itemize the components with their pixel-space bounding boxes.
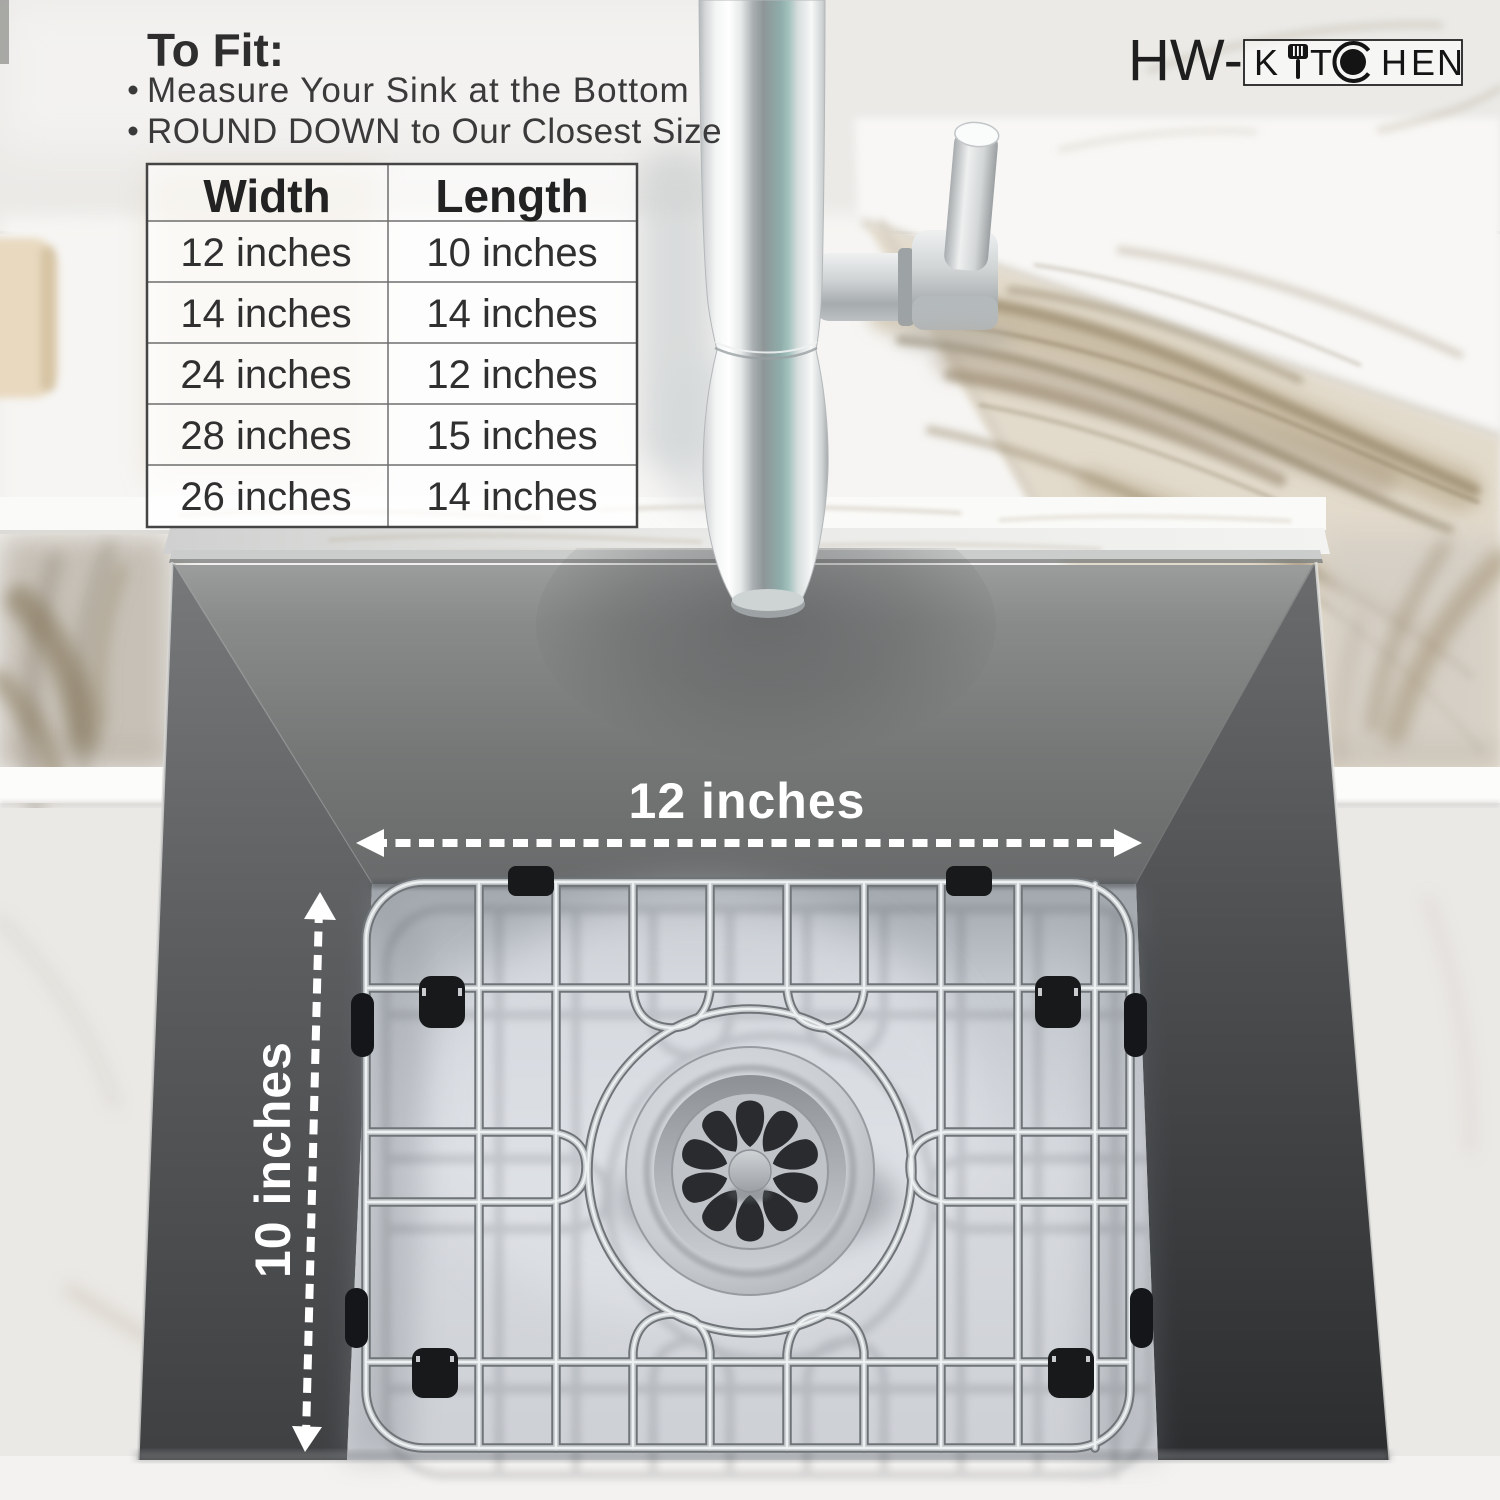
svg-text:12 inches: 12 inches [629, 773, 866, 829]
svg-text:Measure Your Sink at the Botto: Measure Your Sink at the Bottom [147, 71, 690, 110]
svg-text:14 inches: 14 inches [426, 475, 597, 519]
svg-text:H: H [1381, 42, 1407, 83]
svg-text:12 inches: 12 inches [426, 353, 597, 397]
svg-text:15 inches: 15 inches [426, 414, 597, 458]
svg-text:K: K [1254, 42, 1278, 83]
svg-text:T: T [1310, 42, 1332, 83]
svg-text:26 inches: 26 inches [180, 475, 351, 519]
svg-text:Width: Width [203, 170, 330, 222]
svg-text:10 inches: 10 inches [426, 231, 597, 275]
svg-text:28 inches: 28 inches [180, 414, 351, 458]
svg-text:HW-: HW- [1128, 28, 1243, 93]
svg-text:Length: Length [435, 170, 588, 222]
svg-text:To Fit:: To Fit: [147, 24, 284, 76]
svg-text:10 inches: 10 inches [245, 1041, 301, 1278]
svg-text:14 inches: 14 inches [426, 292, 597, 336]
svg-text:24 inches: 24 inches [180, 353, 351, 397]
svg-text:ROUND DOWN to Our Closest Size: ROUND DOWN to Our Closest Size [147, 112, 722, 151]
svg-text:12 inches: 12 inches [180, 231, 351, 275]
svg-text:E: E [1411, 42, 1435, 83]
svg-text:14 inches: 14 inches [180, 292, 351, 336]
svg-text:N: N [1437, 42, 1463, 83]
